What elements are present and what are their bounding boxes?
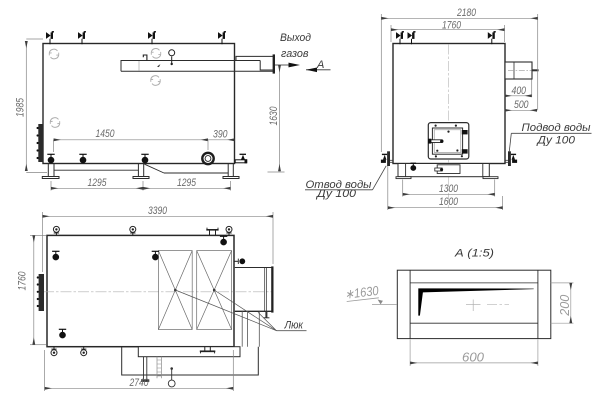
svg-text:1450: 1450 bbox=[96, 128, 115, 140]
svg-text:∗1630: ∗1630 bbox=[344, 283, 380, 302]
svg-text:1630: 1630 bbox=[268, 106, 280, 125]
svg-text:Люк: Люк bbox=[284, 320, 304, 332]
svg-text:500: 500 bbox=[514, 99, 529, 111]
svg-text:400: 400 bbox=[512, 85, 527, 97]
svg-text:1760: 1760 bbox=[16, 271, 28, 290]
svg-text:А (1:5): А (1:5) bbox=[454, 248, 495, 260]
svg-text:2180: 2180 bbox=[456, 7, 476, 19]
svg-text:200: 200 bbox=[557, 294, 572, 317]
svg-text:Подвод воды: Подвод воды bbox=[522, 122, 591, 134]
svg-text:А: А bbox=[316, 59, 324, 71]
svg-text:1295: 1295 bbox=[88, 177, 107, 189]
svg-text:1295: 1295 bbox=[177, 177, 196, 189]
svg-text:1985: 1985 bbox=[14, 98, 26, 117]
svg-text:Выход: Выход bbox=[280, 32, 311, 44]
svg-text:3390: 3390 bbox=[148, 205, 167, 217]
svg-text:газов: газов bbox=[281, 48, 309, 60]
svg-text:600: 600 bbox=[462, 350, 485, 365]
svg-text:1600: 1600 bbox=[439, 196, 458, 208]
svg-text:Ду 100: Ду 100 bbox=[535, 135, 576, 147]
svg-text:1760: 1760 bbox=[442, 19, 461, 31]
svg-text:390: 390 bbox=[213, 129, 228, 141]
svg-text:2740: 2740 bbox=[129, 377, 149, 389]
svg-text:1300: 1300 bbox=[439, 183, 458, 195]
